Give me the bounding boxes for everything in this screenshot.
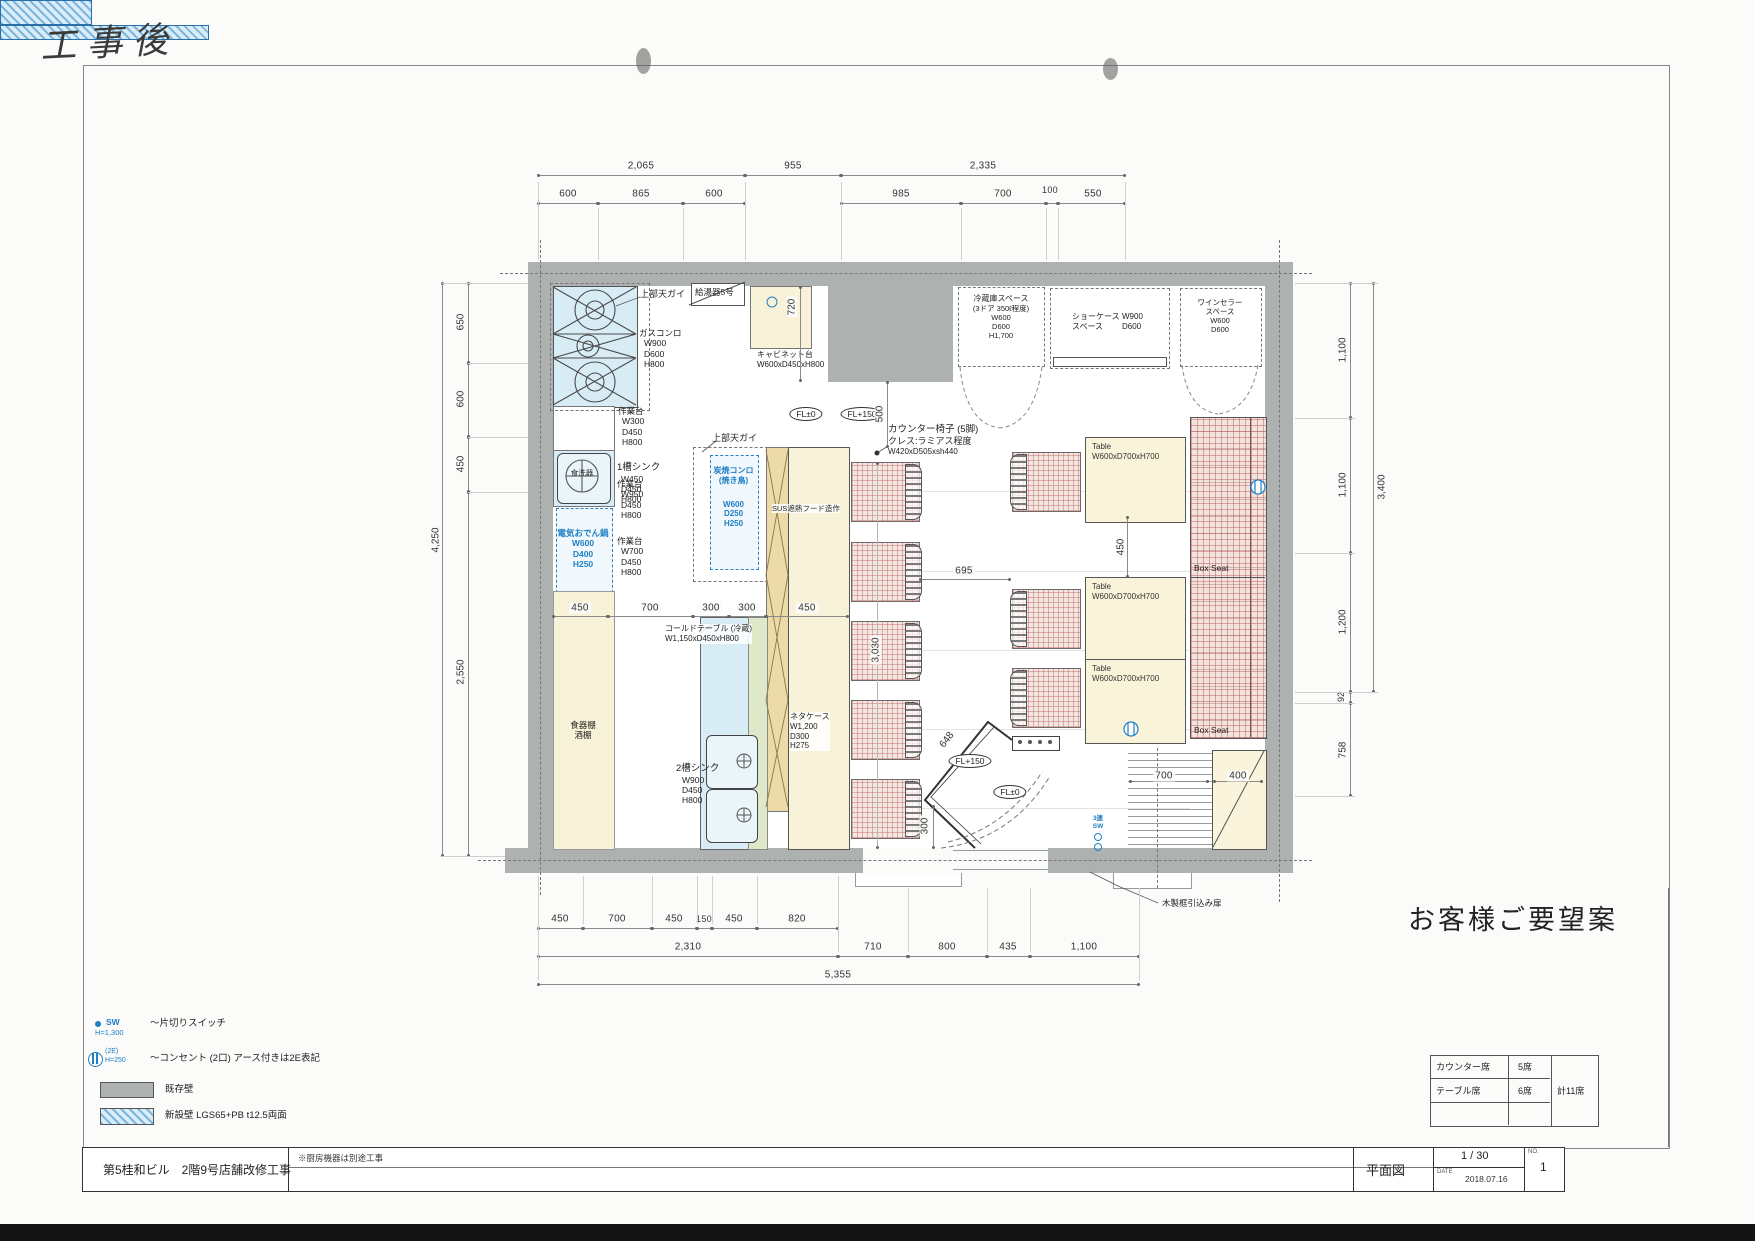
seat-table-row-line [1430, 1102, 1550, 1103]
cold-table-label: コールドテーブル (冷蔵) W1,150xD450xH800 [665, 624, 752, 644]
showcase-size: W900 D600 [1122, 312, 1143, 332]
witness [987, 888, 988, 952]
table-label: Table [1092, 664, 1111, 673]
witness [1295, 553, 1355, 554]
table-size: W600xD700xH700 [1092, 592, 1159, 601]
switch-symbol-icon [95, 1021, 101, 1027]
wine-w: W600 [1210, 316, 1230, 325]
fridge-d: D600 [992, 322, 1010, 331]
threshold-line [953, 850, 1048, 851]
stove-w: W900 [639, 338, 682, 348]
dim: 2,550 [456, 657, 467, 686]
grill-d: D250 [724, 509, 743, 519]
counter-chair [851, 700, 920, 760]
sink2-label: 2槽シンク W900 D450 H800 [676, 763, 719, 806]
tb-divider [1353, 1148, 1354, 1191]
table-chair [1012, 668, 1081, 728]
dim: 3,400 [1377, 472, 1388, 501]
fl-zero-oval-2: FL±0 [993, 785, 1026, 799]
dim-line [841, 175, 1125, 176]
entry-corner-unit [1212, 750, 1267, 850]
showcase-d: D600 [1122, 322, 1143, 332]
wine-l1: ワインセラー [1198, 298, 1243, 307]
dim: 5,355 [823, 970, 854, 981]
dim: 435 [997, 942, 1019, 953]
drawing-title: 平面図 [1366, 1160, 1405, 1179]
oden-label: 電気おでん鍋 W600 D400 H250 [558, 528, 608, 569]
dim: 550 [1082, 189, 1104, 200]
oden-w: W600 [572, 538, 594, 548]
dim-line [838, 956, 908, 957]
seat-count-counter: 5席 [1518, 1060, 1532, 1073]
stove-label: ガスコンロ W900 D600 H800 [639, 328, 682, 369]
sink2-w: W900 [676, 775, 719, 785]
witness [1295, 692, 1378, 693]
legend-new-wall-label: 新設壁 LGS65+PB t12.5両面 [165, 1110, 287, 1121]
cold-table-size: W1,150xD450xH800 [665, 634, 752, 644]
dim: 1,100 [1338, 335, 1349, 364]
dim-line [693, 616, 729, 617]
seat-row-counter: カウンター席 [1436, 1060, 1490, 1073]
witness [1030, 888, 1031, 952]
netacase-h: H275 [790, 741, 830, 751]
sink2-name: 2槽シンク [676, 763, 719, 775]
dishwasher-label: 食洗器 [571, 469, 594, 478]
witness [908, 888, 909, 952]
date-label: DATE [1437, 1169, 1453, 1175]
dim-line [583, 928, 652, 929]
seat-count-table: カウンター席 5席 テーブル席 6席 計11席 [1430, 1055, 1598, 1125]
dim-line [757, 928, 838, 929]
dim: 450 [723, 914, 745, 925]
counter-chair [851, 621, 920, 681]
proposal-title: お客様ご要望案 [1408, 898, 1618, 937]
dim: 865 [630, 189, 652, 200]
sink2-h: H800 [676, 795, 719, 805]
kitchen-note: ※厨房機器は別途工事 [298, 1152, 383, 1164]
threshold-line [953, 869, 1048, 870]
witness [538, 182, 539, 260]
netacase-d: D300 [790, 732, 830, 742]
dim: 300 [736, 603, 758, 614]
table-label: Table [1092, 582, 1111, 591]
dim-line [538, 203, 598, 204]
table-3: Table W600xD700xH700 [1085, 659, 1186, 744]
worktop3-d: D450 [617, 557, 643, 567]
number-label: NO. [1528, 1149, 1539, 1155]
showcase-w: W900 [1122, 312, 1143, 322]
worktop-w300 [553, 406, 615, 452]
dim: 650 [456, 312, 467, 333]
dim: 100 [1040, 185, 1060, 195]
worktop3-name: 作業台 [617, 536, 643, 546]
dim-line [729, 616, 766, 617]
chair-back [1010, 591, 1027, 647]
seat-row-table: テーブル席 [1436, 1084, 1480, 1097]
outlet-bar-icon [96, 1053, 98, 1064]
dim-line [745, 175, 841, 176]
vent-panel [1012, 736, 1060, 751]
legend-existing-wall-swatch [100, 1082, 154, 1098]
switch-dot-icon [1094, 833, 1102, 841]
dim-line [1350, 418, 1351, 553]
hood1-label: 上部天ガイ [640, 289, 685, 300]
wine-l2: スペース [1205, 307, 1234, 316]
sink1-bowl [557, 453, 611, 504]
centerline [500, 273, 1312, 274]
handwritten-note: 工事後 [39, 10, 180, 69]
dim: 800 [936, 942, 958, 953]
dim: 2,310 [673, 942, 704, 953]
dim-line [468, 363, 469, 437]
centerline [540, 240, 541, 895]
dim: 600 [557, 189, 579, 200]
punch-hole [1103, 58, 1118, 80]
counter-chairs-label: カウンター椅子 (5脚) クレス:ラミアス程度 W420xD505xsh440 [888, 424, 978, 456]
oden-h: H250 [573, 559, 593, 569]
dim-line [442, 283, 443, 856]
chair-back [905, 464, 922, 520]
dim: 450 [569, 603, 591, 614]
legend-new-wall-swatch [100, 1108, 154, 1125]
legend-outlet-sym: (2E) [105, 1048, 118, 1055]
dim: 3,030 [871, 635, 882, 664]
oden-d: D400 [573, 549, 593, 559]
centerline [1279, 240, 1280, 902]
chair-back [1010, 670, 1027, 726]
dim-line [1350, 703, 1351, 796]
dim-line [468, 283, 469, 363]
dim: 700 [639, 603, 661, 614]
witness [468, 363, 528, 364]
witness [712, 876, 713, 924]
worktop1-h: H800 [618, 437, 644, 447]
dim-line [1350, 553, 1351, 692]
legend-outlet-height: H=250 [105, 1057, 126, 1064]
counter-chairs-l3: W420xD505xsh440 [888, 447, 978, 457]
dim: 300 [700, 603, 722, 614]
grill-h: H250 [724, 519, 743, 529]
counter-chair [851, 542, 920, 602]
grill-sub: (焼き鳥) [719, 476, 748, 486]
dim: 820 [786, 914, 808, 925]
dim: 700 [992, 189, 1014, 200]
chair-back [905, 544, 922, 600]
dim: 450 [663, 914, 685, 925]
seat-table-col-line [1508, 1055, 1509, 1125]
stove-name: ガスコンロ [639, 328, 682, 338]
dim: 450 [456, 454, 467, 475]
scan-artifact-strip [0, 1224, 1755, 1241]
dim-line [1127, 517, 1128, 577]
project-name: 第5桂和ビル 2階9号店舗改修工事 [103, 1161, 291, 1178]
dim-line [1058, 203, 1125, 204]
witness [1295, 283, 1378, 284]
tb-divider [1524, 1148, 1525, 1191]
dim-line [987, 956, 1030, 957]
dim: 1,100 [1069, 942, 1100, 953]
box-seat-label-2: Box Seat [1194, 725, 1229, 735]
sink1-name: 1槽シンク [617, 462, 660, 474]
dim: 4,250 [431, 525, 442, 554]
outlet-bar-icon [92, 1053, 94, 1064]
witness [442, 283, 528, 284]
dim: 400 [1227, 771, 1249, 782]
box-seat-bench [1190, 417, 1267, 739]
fridge-h: H1,700 [989, 331, 1013, 340]
legend-sw-sym: SW [106, 1017, 120, 1027]
worktop1-label: 作業台 W300 D450 H800 [618, 406, 644, 447]
witness [468, 492, 528, 493]
dim-line [920, 579, 1010, 580]
witness [745, 182, 746, 260]
table-size: W600xD700xH700 [1092, 452, 1159, 461]
cold-table-name: コールドテーブル (冷蔵) [665, 624, 752, 634]
sus-hood-column [766, 447, 790, 812]
dim: 700 [606, 914, 628, 925]
table-1: Table W600xD700xH700 [1085, 437, 1186, 523]
dim-line [538, 984, 1139, 985]
dim-line [841, 203, 961, 204]
cupboard-label: 食器棚 酒棚 [562, 720, 604, 741]
switch-count: 3連 [1093, 815, 1103, 823]
wall-partition [828, 262, 953, 382]
counter-chair [851, 462, 920, 522]
dim-line [800, 287, 801, 381]
dim-line [683, 203, 745, 204]
switch-dot-icon [1094, 843, 1102, 851]
dim-line [712, 928, 757, 929]
triple-switch: 3連 SW [1090, 815, 1106, 851]
table-label: Table [1092, 442, 1111, 451]
switch-label: SW [1093, 823, 1103, 831]
dim-line [553, 616, 608, 617]
legend-existing-wall-label: 既存壁 [165, 1084, 194, 1095]
cabinet-name: キャビネット台 [757, 350, 824, 360]
dim-line [1030, 956, 1139, 957]
counter-chairs-l2: クレス:ラミアス程度 [888, 436, 978, 447]
dim-line [1350, 283, 1351, 418]
witness [683, 208, 684, 260]
witness [961, 208, 962, 260]
dim: 720 [787, 297, 798, 318]
sus-hood-label: SUS遮熱フード造作 [772, 504, 840, 513]
number-value: 1 [1540, 1160, 1547, 1174]
seat-count-table-row: 6席 [1518, 1084, 1532, 1097]
showcase-shelf [1053, 357, 1167, 367]
dim-line [608, 616, 693, 617]
netacase-w: W1,200 [790, 722, 830, 732]
witness [538, 876, 539, 980]
witness [583, 876, 584, 924]
dim-line [766, 616, 848, 617]
dim-line [468, 437, 469, 492]
witness [697, 876, 698, 924]
fl-zero-oval: FL±0 [789, 407, 822, 421]
cabinet-label: キャビネット台 W600xD450xH800 [757, 350, 824, 370]
witness [838, 876, 839, 952]
netacase-name: ネタケース [790, 712, 830, 722]
dim-line [1373, 283, 1374, 692]
fridge-l2: (3ドア 350ℓ程度) [973, 304, 1029, 313]
dim: 500 [875, 404, 886, 425]
showcase-label: ショーケース スペース [1072, 312, 1120, 332]
witness [442, 856, 505, 857]
tb-mid-line [288, 1167, 1435, 1168]
wine-label: ワインセラー スペース W600 D600 [1190, 298, 1250, 335]
hood-over-stove [550, 283, 650, 411]
witness [598, 208, 599, 260]
grill-w: W600 [723, 500, 744, 510]
dim-line [538, 175, 745, 176]
sheet-divider [1668, 888, 1669, 1147]
punch-hole [636, 48, 651, 74]
dim-line [697, 928, 712, 929]
date-value: 2018.07.16 [1465, 1174, 1508, 1184]
dim: 710 [862, 942, 884, 953]
box-seat-backline [1250, 417, 1251, 737]
worktop1-w: W300 [618, 416, 644, 426]
box-seat-label-1: Box Seat [1194, 563, 1229, 573]
dim: 955 [782, 161, 804, 172]
dim: 2,065 [626, 161, 657, 172]
seat-table-row-line [1430, 1078, 1550, 1079]
stove-h: H800 [639, 359, 682, 369]
fl-plus150-oval-2: FL+150 [948, 754, 991, 768]
witness [841, 182, 842, 260]
dim: 2,335 [968, 161, 999, 172]
seat-total: 計11席 [1557, 1084, 1584, 1097]
fridge-l1: 冷蔵庫スペース [973, 294, 1028, 304]
sink2-d: D450 [676, 785, 719, 795]
dim: 450 [549, 914, 571, 925]
worktop2-name: 作業台 [617, 479, 643, 489]
tb-divider [1433, 1148, 1434, 1191]
cabinet-size: W600xD450xH800 [757, 360, 824, 370]
dim-line [933, 806, 934, 848]
showcase-l1: ショーケース [1072, 312, 1120, 322]
drawing-sheet: 工事後 [0, 0, 1755, 1241]
cupboard2-label: 酒棚 [574, 730, 591, 740]
dim-line [538, 956, 838, 957]
dim: 600 [703, 189, 725, 200]
counter-chairs-l1: カウンター椅子 (5脚) [888, 424, 978, 436]
fridge-w: W600 [991, 313, 1011, 322]
witness [652, 876, 653, 924]
chair-back [905, 623, 922, 679]
centerline [478, 860, 1312, 861]
table-chair [1012, 452, 1081, 512]
dim: 700 [1153, 771, 1175, 782]
table-size: W600xD700xH700 [1092, 674, 1159, 683]
showcase-l2: スペース [1072, 322, 1120, 332]
witness [1295, 796, 1355, 797]
dim: 1,100 [1338, 470, 1349, 499]
chair-back [1010, 454, 1027, 510]
fridge-label: 冷蔵庫スペース (3ドア 350ℓ程度) W600 D600 H1,700 [962, 294, 1040, 340]
witness [1295, 418, 1355, 419]
oden-name: 電気おでん鍋 [558, 528, 609, 538]
worktop2-d: D450 [617, 500, 643, 510]
worktop3-w: W700 [617, 546, 643, 556]
wine-d: D600 [1211, 325, 1229, 334]
dim-line [908, 956, 987, 957]
witness [1125, 182, 1126, 260]
stove-d: D600 [639, 349, 682, 359]
dim: 450 [796, 603, 818, 614]
witness [468, 437, 528, 438]
title-block: 第5桂和ビル 2階9号店舗改修工事 ※厨房機器は別途工事 平面図 1 / 30 … [82, 1147, 1565, 1192]
witness [1058, 208, 1059, 260]
worktop1-d: D450 [618, 427, 644, 437]
chair-back [905, 702, 922, 758]
worktop-w700-label: 作業台 W700 D450 H800 [617, 536, 643, 577]
scale-value: 1 / 30 [1461, 1150, 1489, 1162]
worktop1-name: 作業台 [618, 406, 644, 416]
dim-line [538, 928, 583, 929]
dim: 300 [920, 816, 931, 837]
entry-centerline [1157, 748, 1158, 888]
table-2: Table W600xD700xH700 [1085, 577, 1186, 663]
dim: 600 [456, 389, 467, 410]
cabinet-stand [750, 286, 812, 349]
counter-chair [851, 779, 920, 839]
legend-sw-label: 〜片切りスイッチ [150, 1018, 226, 1029]
dim-line [468, 492, 469, 856]
dim-line [887, 382, 888, 447]
dim-line [961, 203, 1046, 204]
box-seat-divider [1190, 577, 1265, 578]
dim-line [598, 203, 683, 204]
witness [1139, 888, 1140, 980]
worktop2-w: W950 [617, 489, 643, 499]
grill-label: 炭焼コンロ (焼き鳥) W600 D250 H250 [712, 466, 755, 529]
worktop3-h: H800 [617, 567, 643, 577]
witness [1046, 208, 1047, 260]
water-heater-label: 給湯器5号 [695, 287, 734, 297]
dim: 985 [890, 189, 912, 200]
threshold-ledge [855, 873, 962, 887]
worktop2-h: H800 [617, 510, 643, 520]
grill-name: 炭焼コンロ [714, 466, 754, 476]
legend-outlet-label: 〜コンセント (2口) アース付きは2E表記 [150, 1053, 320, 1064]
tb-divider [1433, 1167, 1524, 1168]
dim: 450 [1116, 537, 1127, 558]
wood-door-label: 木製框引込み扉 [1162, 898, 1222, 908]
witness [1295, 703, 1355, 704]
dim: 1,200 [1338, 607, 1349, 636]
legend-sw-height: H=1,300 [95, 1028, 124, 1037]
witness [757, 876, 758, 924]
netacase-label: ネタケース W1,200 D300 H275 [790, 712, 830, 751]
table-chair [1012, 589, 1081, 649]
entry-step [1113, 873, 1192, 889]
worktop-w950-label: 作業台 W950 D450 H800 [617, 479, 643, 520]
dim: 695 [953, 566, 975, 577]
hood2-label: 上部天ガイ [712, 433, 757, 444]
dim-line [652, 928, 697, 929]
cupboard1-label: 食器棚 [570, 720, 596, 730]
entry-shelf-slats [1128, 753, 1212, 847]
dim: 758 [1338, 740, 1349, 761]
